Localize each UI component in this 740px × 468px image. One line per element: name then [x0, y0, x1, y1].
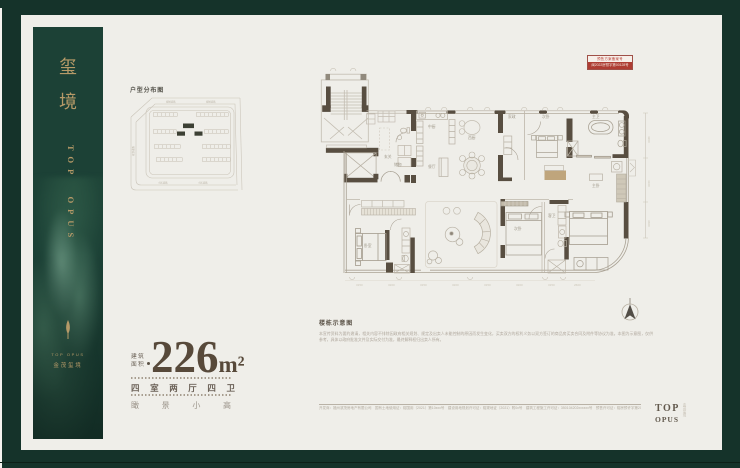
- svg-text:3150: 3150: [484, 283, 491, 287]
- svg-text:规划道路: 规划道路: [206, 100, 216, 104]
- svg-text:3150: 3150: [356, 283, 363, 287]
- svg-text:3200: 3200: [388, 283, 395, 287]
- svg-text:次卧: 次卧: [514, 226, 522, 231]
- svg-text:储物: 储物: [394, 162, 402, 167]
- svg-text:主卫: 主卫: [592, 114, 600, 119]
- svg-text:主卧: 主卧: [592, 183, 600, 188]
- svg-text:3150: 3150: [420, 283, 427, 287]
- svg-text:餐厅: 餐厅: [428, 164, 436, 169]
- svg-text:小区道路: 小区道路: [198, 181, 208, 185]
- svg-text:4200: 4200: [647, 136, 651, 143]
- svg-text:卧室: 卧室: [364, 243, 372, 248]
- svg-text:3200: 3200: [452, 283, 459, 287]
- svg-text:3200: 3200: [516, 283, 523, 287]
- svg-text:中厨: 中厨: [428, 124, 436, 129]
- svg-text:小区道路: 小区道路: [158, 181, 168, 185]
- svg-text:2600: 2600: [574, 283, 581, 287]
- svg-text:3150: 3150: [548, 283, 555, 287]
- svg-text:次卧: 次卧: [542, 114, 550, 119]
- svg-text:客卫: 客卫: [548, 213, 556, 218]
- svg-text:规划道路: 规划道路: [166, 100, 176, 104]
- svg-text:4100: 4100: [647, 180, 651, 187]
- svg-text:规划道路: 规划道路: [131, 146, 135, 156]
- svg-text:西厨: 西厨: [468, 135, 476, 140]
- svg-text:玄关: 玄关: [384, 154, 392, 159]
- svg-text:3600: 3600: [647, 220, 651, 227]
- svg-text:家政: 家政: [508, 114, 516, 119]
